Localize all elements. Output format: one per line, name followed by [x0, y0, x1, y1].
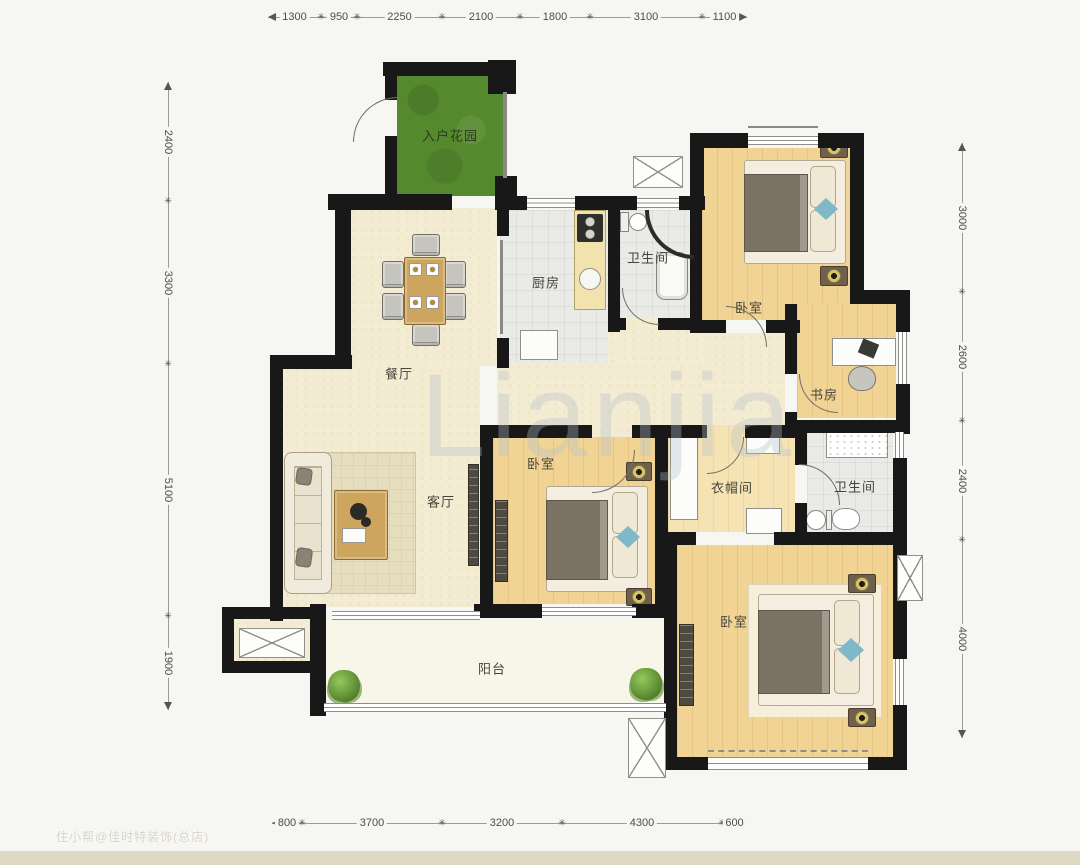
dimension-arrow	[164, 82, 172, 90]
corner-watermark: 住小帮@佳时特装饰(总店)	[56, 828, 209, 845]
dim-label: 1900	[162, 648, 174, 678]
wardrobe	[495, 500, 508, 582]
bay-window-dashed-line	[708, 750, 868, 755]
stove	[577, 214, 603, 242]
dim-label: 3200	[487, 817, 517, 829]
ac-platform-hatch	[239, 628, 305, 658]
ac-platform-hatch	[633, 156, 683, 188]
window	[708, 757, 868, 770]
tea-set	[361, 517, 371, 527]
wall-thin-segment	[500, 240, 503, 334]
room-label-study: 书房	[810, 385, 838, 404]
dimension-tick: ✳	[164, 611, 172, 622]
dimension-tick: ✳	[586, 12, 594, 23]
closet	[670, 430, 698, 520]
dimension-tick: ✳	[298, 818, 306, 829]
dim-label: 3100	[631, 11, 661, 23]
wall-segment	[495, 176, 517, 198]
tv-cabinet	[468, 464, 479, 566]
dim-label: 1100	[710, 11, 740, 23]
wall-segment	[497, 208, 509, 236]
balcony-plant	[630, 668, 662, 700]
wall-segment	[480, 425, 592, 438]
room-label-bath1: 卫生间	[627, 248, 669, 267]
dimension-tick: ✳	[958, 287, 966, 298]
ac-platform-hatch	[897, 555, 923, 601]
wall-segment	[668, 532, 696, 545]
closet	[746, 508, 782, 534]
floor-plan-canvas: 入户花园 厨房 卫生间 卧室 书房 餐厅 客厅 卧室 衣帽间 卫生间 卧室 阳台…	[0, 0, 1080, 865]
wall-segment	[664, 757, 708, 770]
dim-label: 1300	[279, 11, 309, 23]
dim-label: 950	[327, 11, 351, 23]
room-label-entry-garden: 入户花园	[422, 126, 478, 145]
wall-segment	[745, 425, 797, 438]
wall-segment	[850, 290, 910, 304]
dim-label: 3300	[162, 267, 174, 297]
wall-segment	[774, 532, 795, 545]
dining-chair	[444, 261, 466, 288]
window	[542, 607, 636, 616]
dining-chair	[382, 261, 404, 288]
dimension-arrow	[164, 702, 172, 710]
dimension-tick: ✳	[558, 818, 566, 829]
bed-blanket	[758, 610, 830, 694]
wall-segment	[480, 437, 493, 605]
room-label-cloakroom: 衣帽间	[711, 478, 753, 497]
dining-chair	[412, 234, 440, 256]
window	[332, 611, 480, 620]
dim-label: 2400	[956, 465, 968, 495]
dim-label: 2400	[162, 126, 174, 156]
fridge	[520, 330, 558, 360]
wall-segment	[575, 196, 637, 210]
room-label-bath2: 卫生间	[834, 477, 876, 496]
room-label-bedroom3: 卧室	[720, 612, 748, 631]
window	[637, 198, 679, 208]
dim-label: 2250	[384, 11, 414, 23]
wall-segment	[488, 60, 516, 94]
nightstand-lamp	[848, 574, 876, 593]
dim-label: 4000	[956, 624, 968, 654]
dim-label: 3000	[956, 202, 968, 232]
dining-chair	[444, 293, 466, 320]
toilet	[629, 213, 647, 231]
wall-segment	[335, 194, 351, 368]
dining-chair	[382, 293, 404, 320]
dimension-tick: ✳	[164, 196, 172, 207]
bed-blanket	[744, 174, 808, 252]
wall-segment	[702, 320, 726, 333]
window	[527, 198, 575, 208]
dimension-arrow	[958, 143, 966, 151]
dim-label: 800	[275, 817, 299, 829]
wall-segment	[270, 355, 283, 621]
wall-segment	[497, 338, 509, 368]
dimension-tick: ✳	[958, 416, 966, 427]
dimension-arrow	[739, 13, 747, 21]
wall-segment	[474, 604, 542, 618]
wall-thin-segment	[748, 126, 818, 128]
dim-label: 3700	[357, 817, 387, 829]
tray	[342, 528, 366, 543]
plate	[426, 296, 439, 309]
wall-segment	[702, 133, 748, 148]
dimension-arrow	[958, 730, 966, 738]
room-label-dining: 餐厅	[385, 364, 413, 383]
nightstand-lamp	[848, 708, 876, 727]
window	[748, 136, 818, 145]
dim-label: 2600	[956, 341, 968, 371]
wall-segment	[310, 604, 326, 716]
kitchen-sink	[579, 268, 601, 290]
wall-segment	[658, 318, 702, 330]
toilet	[620, 212, 629, 232]
wall-segment	[632, 425, 707, 438]
wall-segment	[222, 661, 324, 673]
throw-pillow	[295, 467, 313, 486]
bed-pillow	[834, 600, 860, 646]
dim-label: 4300	[627, 817, 657, 829]
wall-segment	[222, 607, 324, 619]
dimension-tick: ✳	[958, 535, 966, 546]
wall-segment	[893, 420, 907, 432]
desk-chair	[848, 366, 876, 391]
room-label-bedroom2: 卧室	[527, 454, 555, 473]
bath-sink	[832, 508, 860, 530]
wall-segment	[608, 318, 626, 330]
wall-segment	[896, 304, 910, 332]
dimension-arrow	[268, 13, 276, 21]
plate	[409, 263, 422, 276]
window	[324, 703, 666, 712]
window	[895, 432, 904, 458]
wardrobe	[679, 624, 694, 706]
bed-blanket	[546, 500, 608, 580]
dimension-tick: ✳	[438, 12, 446, 23]
dim-label: 5100	[162, 475, 174, 505]
nightstand-lamp	[820, 266, 848, 286]
room-label-living: 客厅	[427, 492, 455, 511]
plate	[426, 263, 439, 276]
dim-label: 1800	[540, 11, 570, 23]
bottom-strip	[0, 851, 1080, 865]
dimension-tick: ✳	[698, 12, 706, 23]
shower	[826, 432, 888, 458]
wall-segment	[866, 757, 907, 770]
throw-pillow	[295, 547, 313, 568]
dimension-tick: ✳	[164, 359, 172, 370]
dimension-tick: ✳	[317, 12, 325, 23]
dimension-tick: ✳	[353, 12, 361, 23]
wall-thin-segment	[503, 92, 507, 178]
toilet	[806, 510, 826, 530]
entry-door-arc	[353, 97, 398, 142]
wall-segment	[795, 532, 907, 545]
wall-segment	[385, 136, 397, 198]
wall-segment	[850, 133, 864, 304]
room-label-balcony: 阳台	[478, 659, 506, 678]
plate	[409, 296, 422, 309]
wall-segment	[795, 425, 807, 465]
dim-label: 2100	[466, 11, 496, 23]
room-label-bedroom1: 卧室	[735, 298, 763, 317]
dimension-tick: ✳	[438, 818, 446, 829]
dining-chair	[412, 324, 440, 346]
dimension-tick: ✳	[516, 12, 524, 23]
dim-label: 600	[722, 817, 746, 829]
window	[895, 659, 904, 705]
window	[898, 332, 907, 384]
wall-segment	[608, 196, 620, 332]
ac-platform-hatch	[628, 718, 666, 778]
room-label-kitchen: 厨房	[532, 273, 560, 292]
balcony-plant	[328, 670, 360, 702]
wall-segment	[785, 304, 797, 374]
bed-pillow	[612, 492, 638, 534]
